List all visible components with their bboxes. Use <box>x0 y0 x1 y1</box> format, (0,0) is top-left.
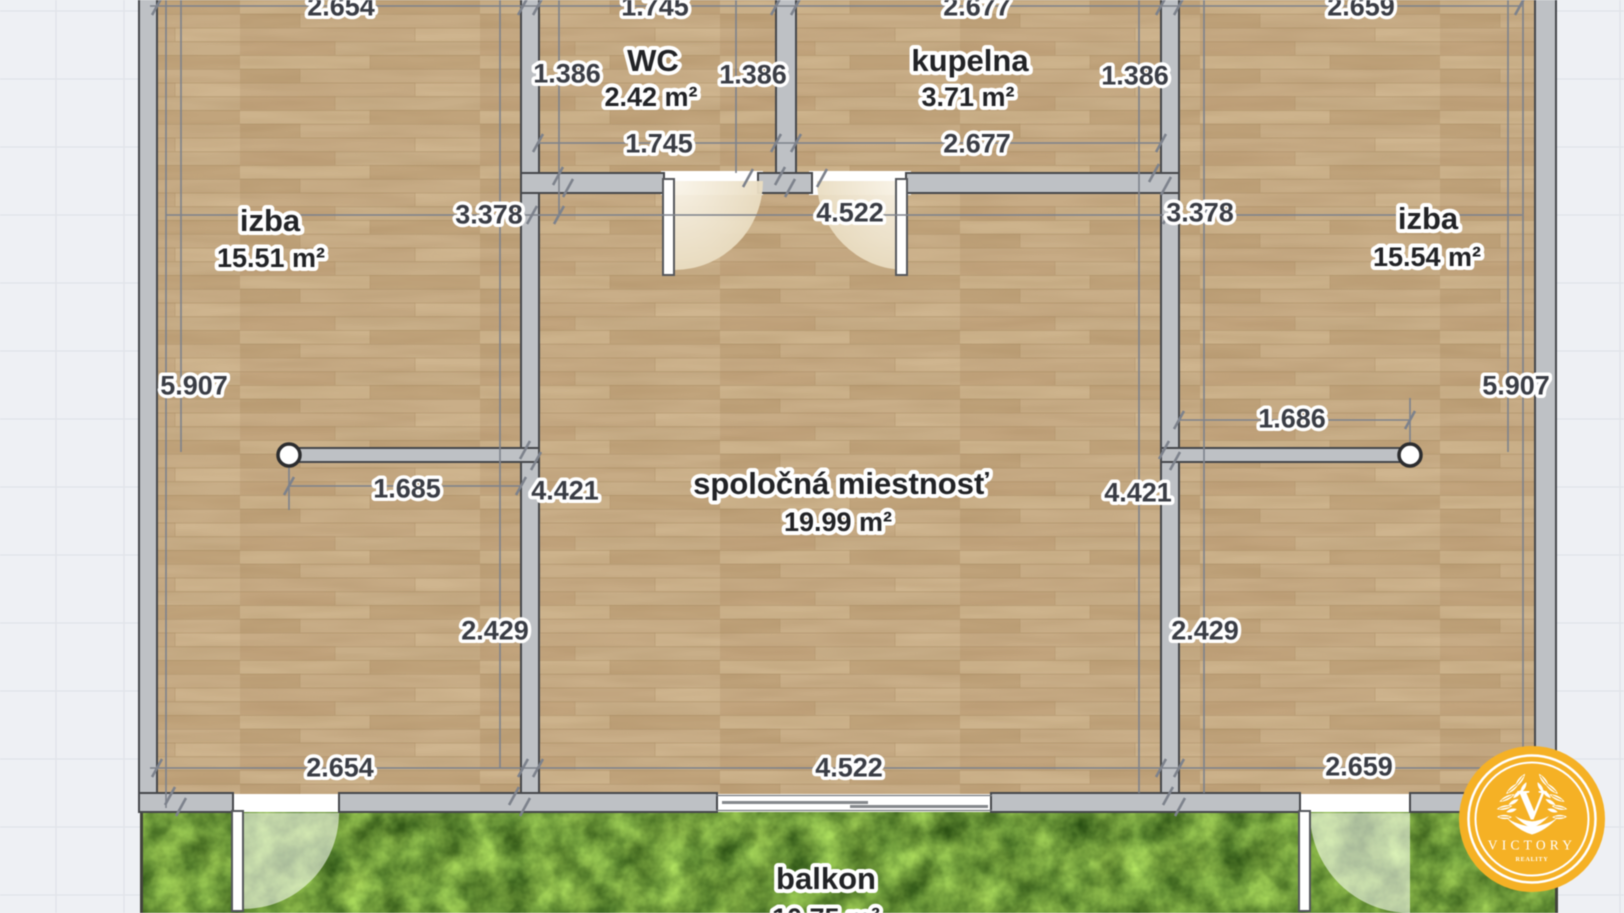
svg-text:kupelna: kupelna <box>911 43 1029 78</box>
svg-text:VICTORY: VICTORY <box>1488 838 1576 853</box>
svg-text:3.71 m²: 3.71 m² <box>921 82 1014 112</box>
svg-text:izba: izba <box>1398 201 1459 236</box>
svg-text:1.745: 1.745 <box>625 129 693 159</box>
svg-text:1.386: 1.386 <box>1101 61 1169 91</box>
svg-text:15.51 m²: 15.51 m² <box>217 243 325 273</box>
svg-text:spoločná miestnosť: spoločná miestnosť <box>693 466 989 501</box>
svg-text:4.421: 4.421 <box>1104 478 1172 508</box>
svg-text:1.386: 1.386 <box>719 60 787 90</box>
svg-text:balkon: balkon <box>776 861 876 896</box>
svg-text:2.429: 2.429 <box>1171 616 1239 646</box>
svg-text:WC: WC <box>627 43 679 78</box>
svg-text:2.659: 2.659 <box>1325 752 1393 782</box>
svg-text:1.386: 1.386 <box>533 59 601 89</box>
svg-text:2.654: 2.654 <box>306 753 374 783</box>
svg-text:2.42 m²: 2.42 m² <box>604 82 697 112</box>
svg-text:REALITY: REALITY <box>1516 857 1549 863</box>
svg-text:4.522: 4.522 <box>815 753 883 783</box>
svg-text:10.75 m²: 10.75 m² <box>772 903 880 913</box>
svg-text:izba: izba <box>240 203 301 238</box>
svg-text:1.745: 1.745 <box>621 0 689 22</box>
svg-text:2.677: 2.677 <box>943 0 1011 22</box>
svg-text:2.654: 2.654 <box>307 0 375 22</box>
svg-text:15.54 m²: 15.54 m² <box>1373 242 1481 272</box>
svg-text:5.907: 5.907 <box>160 371 228 401</box>
svg-text:2.659: 2.659 <box>1327 0 1395 22</box>
svg-text:4.421: 4.421 <box>531 476 599 506</box>
svg-text:3.378: 3.378 <box>455 200 523 230</box>
svg-text:19.99 m²: 19.99 m² <box>784 507 892 537</box>
svg-text:V: V <box>1517 783 1547 829</box>
svg-text:5.907: 5.907 <box>1482 371 1550 401</box>
svg-text:1.685: 1.685 <box>373 474 441 504</box>
svg-text:4.522: 4.522 <box>816 198 884 228</box>
svg-text:1.686: 1.686 <box>1258 404 1326 434</box>
svg-text:2.429: 2.429 <box>461 616 529 646</box>
svg-text:3.378: 3.378 <box>1166 198 1234 228</box>
svg-text:2.677: 2.677 <box>943 129 1011 159</box>
